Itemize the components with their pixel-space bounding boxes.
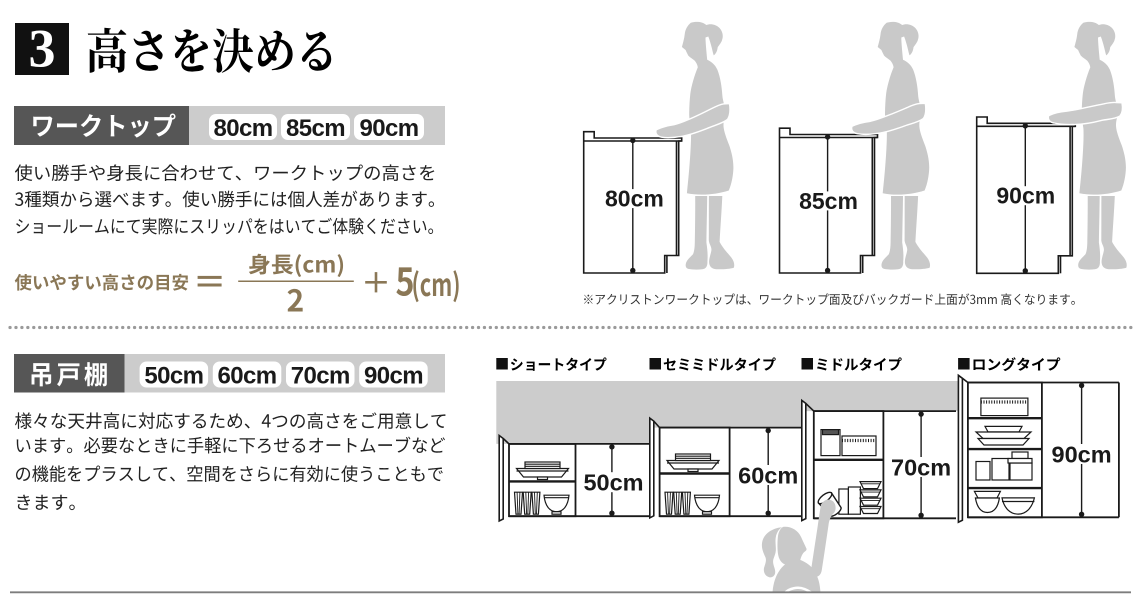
svg-text:90cm: 90cm — [360, 115, 419, 142]
svg-text:85cm: 85cm — [286, 115, 345, 142]
svg-text:50cm: 50cm — [583, 470, 643, 496]
svg-text:60cm: 60cm — [218, 363, 277, 390]
svg-text:90cm: 90cm — [1052, 442, 1112, 468]
svg-text:3: 3 — [29, 19, 56, 79]
svg-text:80cm: 80cm — [605, 186, 664, 212]
svg-text:90cm: 90cm — [996, 183, 1055, 209]
svg-text:60cm: 60cm — [738, 463, 798, 489]
svg-text:80cm: 80cm — [214, 115, 273, 142]
svg-text:50cm: 50cm — [144, 363, 203, 390]
svg-text:85cm: 85cm — [799, 188, 858, 214]
svg-text:70cm: 70cm — [291, 363, 350, 390]
svg-text:70cm: 70cm — [891, 455, 951, 481]
svg-text:90cm: 90cm — [364, 363, 423, 390]
